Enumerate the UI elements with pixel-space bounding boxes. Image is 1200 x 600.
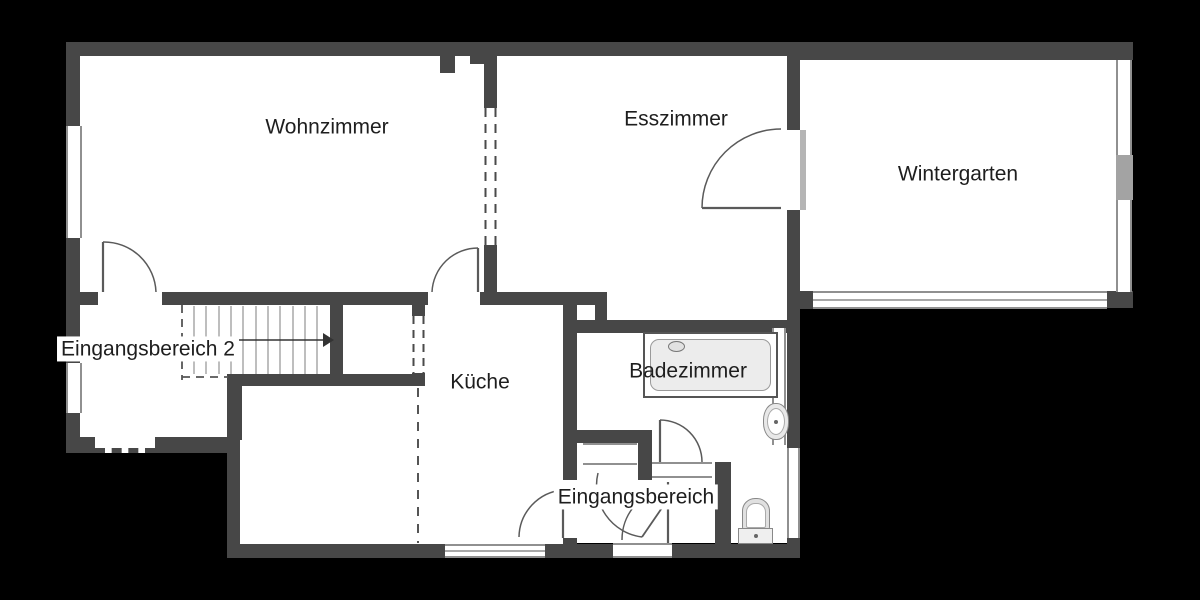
wall-e2-right <box>228 380 242 440</box>
door-threshold-badezimmer <box>652 462 712 478</box>
label-eingangsbereich2: Eingangsbereich 2 <box>57 336 239 361</box>
door-threshold-e2-exit <box>95 437 155 453</box>
toilet-bowl <box>742 498 770 530</box>
toilet-flush-button-icon <box>754 534 758 538</box>
wall-closet-right-b <box>412 373 425 386</box>
bathtub-faucet-icon <box>668 341 685 352</box>
floor-wohnzimmer-esszimmer <box>80 56 787 292</box>
wall-closet-right-a <box>412 296 425 316</box>
door-threshold-entry <box>613 543 672 558</box>
wall-wohn-ess-upper <box>484 56 497 108</box>
floor-kueche-area <box>228 305 563 545</box>
wall-wg-corner-br <box>1107 291 1133 308</box>
label-wohnzimmer: Wohnzimmer <box>261 114 392 139</box>
wall-top <box>66 42 800 56</box>
wall-wg-corner-bl <box>793 291 813 309</box>
wall-stairs-right <box>330 293 343 386</box>
floor-eingangsbereich2 <box>80 305 228 437</box>
toilet-bowl-inner <box>746 503 766 528</box>
door-opening-wohnzimmer-kueche <box>428 292 480 305</box>
wall-top-wintergarten <box>800 42 1133 60</box>
wall-right-upper <box>787 300 800 448</box>
door-threshold-nook <box>583 443 637 465</box>
window-wintergarten-bottom <box>813 291 1107 309</box>
wall-ess-wg-upper <box>787 42 800 130</box>
door-opening-wohnzimmer-e2 <box>98 292 162 305</box>
toilet-tank <box>738 528 773 544</box>
label-eingangsbereich: Eingangsbereich <box>554 484 718 509</box>
label-wintergarten: Wintergarten <box>894 161 1022 186</box>
window-mullion <box>1116 155 1133 200</box>
window-wc <box>787 448 800 538</box>
label-kueche: Küche <box>446 369 514 394</box>
window-left-upper <box>66 126 82 238</box>
window-bottom-left <box>445 544 545 558</box>
label-esszimmer: Esszimmer <box>620 106 732 131</box>
wall-kueche-right-b <box>563 443 577 480</box>
sink-drain-icon <box>774 420 778 424</box>
wall-bad-step <box>638 430 652 480</box>
wall-kueche-right-a <box>563 292 577 443</box>
floor-plan: Wohnzimmer Esszimmer Wintergarten Eingan… <box>0 0 1200 600</box>
door-frame-wintergarten <box>800 130 806 210</box>
sink <box>763 403 789 440</box>
door-opening-esszimmer-wintergarten <box>787 130 800 210</box>
wall-ess-wg-lower <box>787 210 800 300</box>
label-badezimmer: Badezimmer <box>625 358 751 383</box>
window-left-lower <box>66 363 82 413</box>
wall-chimney-notch <box>440 56 455 73</box>
wall-under-stairs <box>227 374 425 386</box>
